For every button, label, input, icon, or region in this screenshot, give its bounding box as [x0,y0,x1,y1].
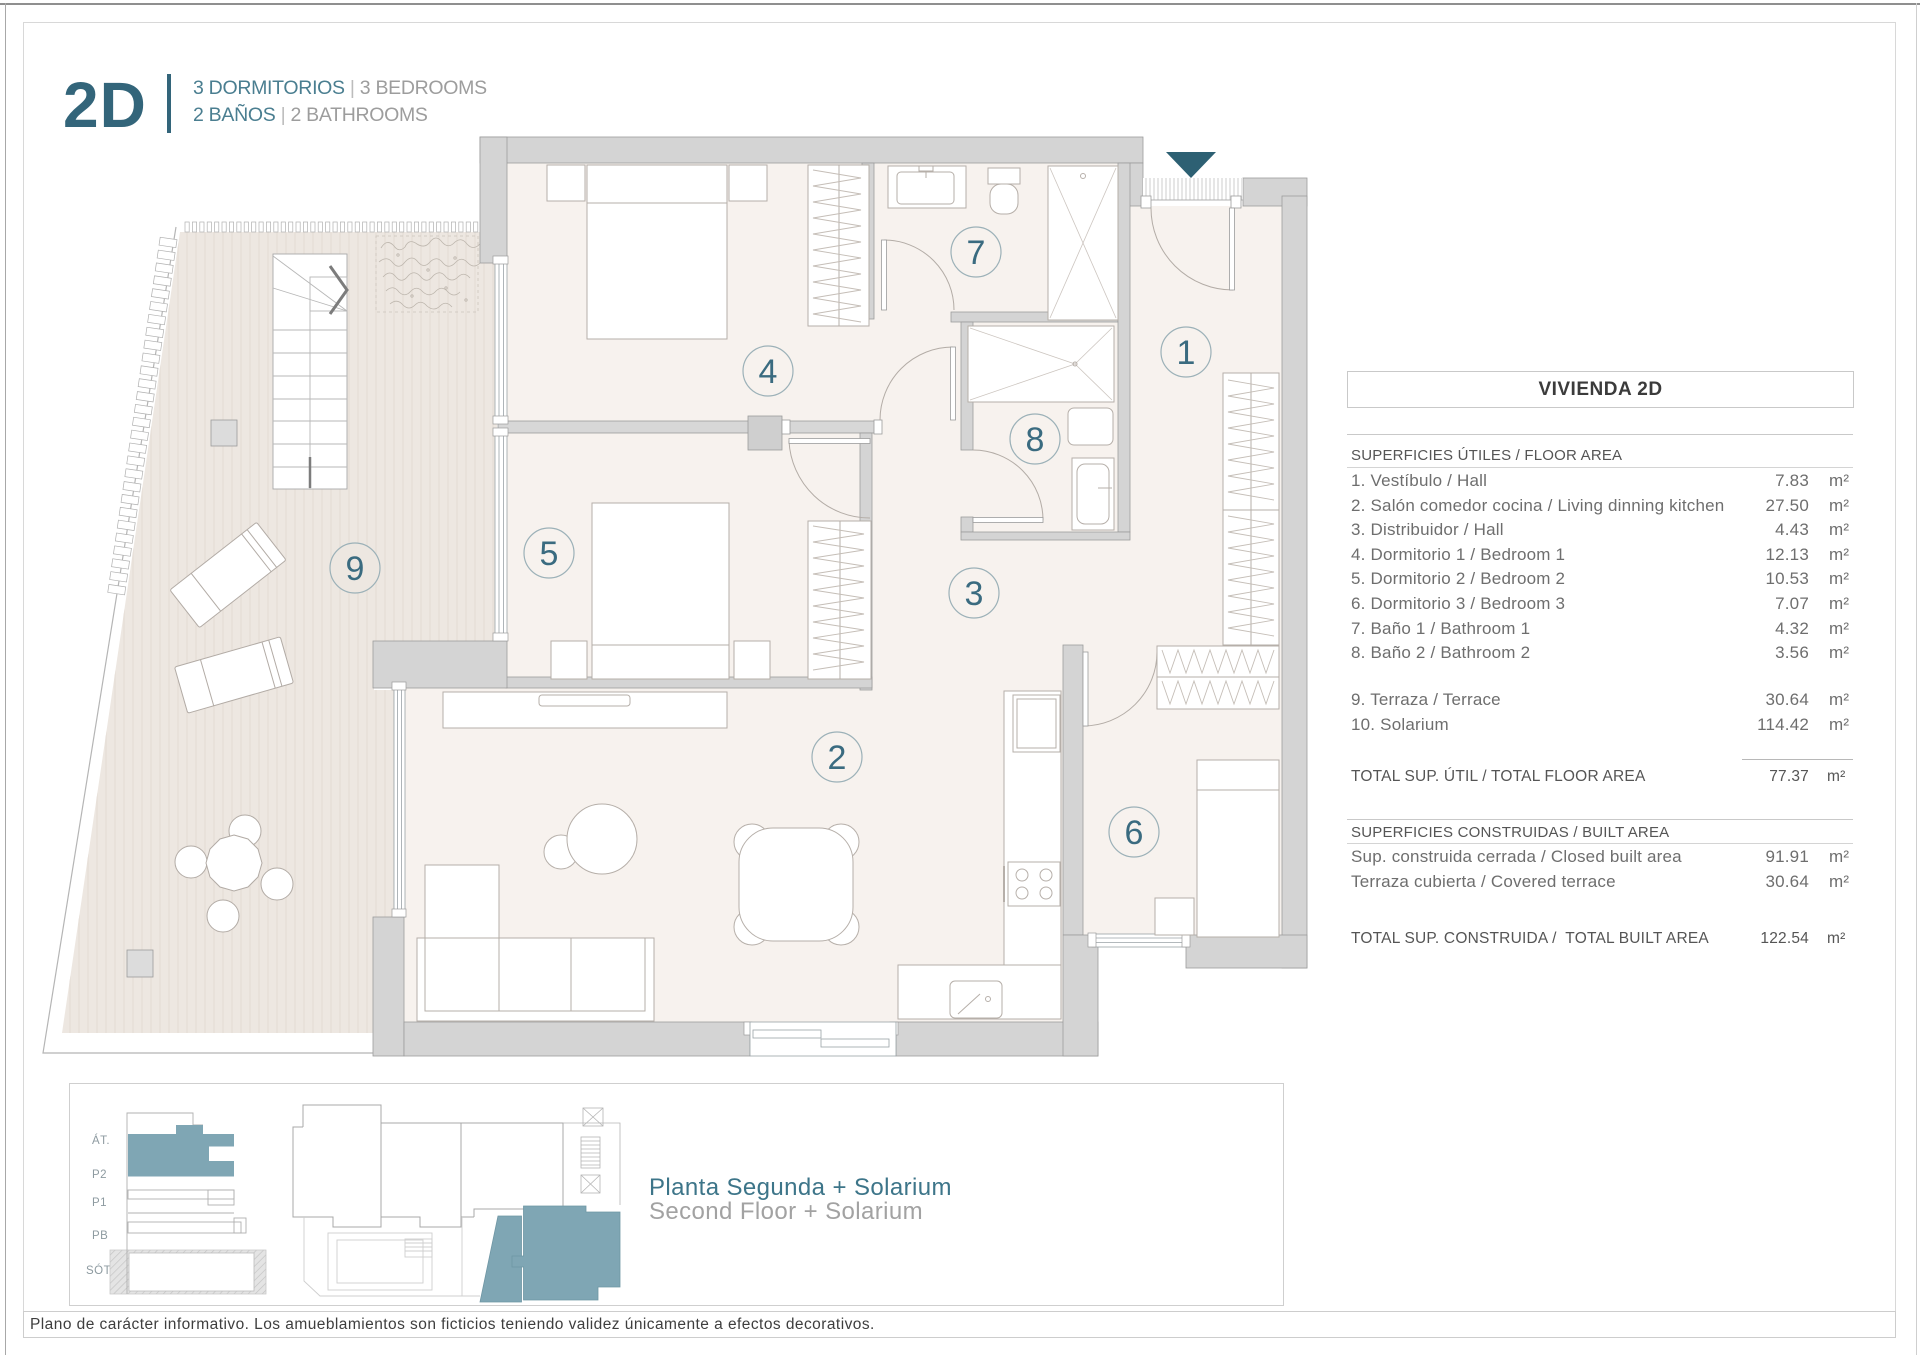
svg-text:PB: PB [92,1230,108,1242]
svg-text:ÁT.: ÁT. [92,1134,110,1147]
svg-text:SÓT.: SÓT. [86,1264,114,1277]
svg-text:P1: P1 [92,1197,107,1209]
svg-text:P2: P2 [92,1169,107,1181]
